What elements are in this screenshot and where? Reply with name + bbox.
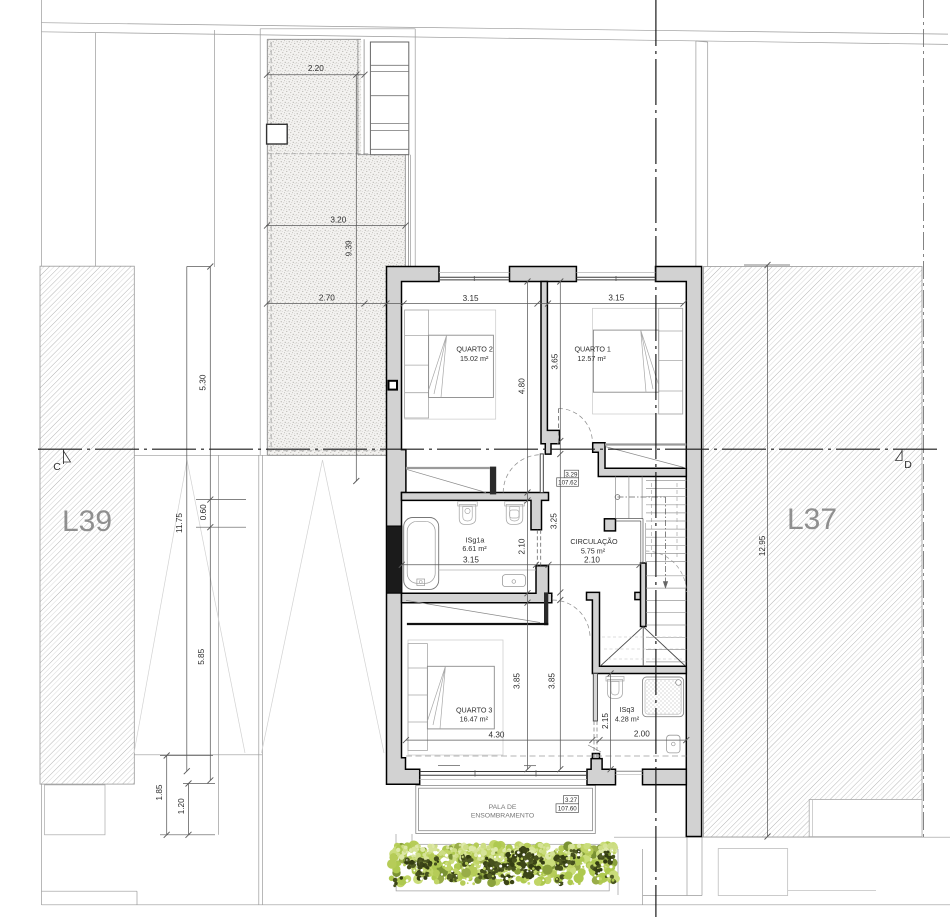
svg-text:6.61 m²: 6.61 m² — [462, 544, 487, 553]
svg-text:1.20: 1.20 — [177, 798, 186, 814]
svg-text:9.39: 9.39 — [344, 240, 353, 256]
svg-text:ISg1a: ISg1a — [466, 536, 485, 545]
svg-text:107.60: 107.60 — [558, 806, 577, 813]
svg-text:3.85: 3.85 — [548, 673, 557, 689]
svg-text:11.75: 11.75 — [175, 513, 184, 533]
svg-text:QUARTO 1: QUARTO 1 — [574, 344, 610, 353]
svg-text:4.28 m²: 4.28 m² — [615, 714, 640, 723]
svg-text:2.20: 2.20 — [308, 64, 324, 73]
svg-text:4.80: 4.80 — [517, 378, 526, 394]
svg-text:3.15: 3.15 — [463, 294, 479, 303]
svg-text:3.15: 3.15 — [463, 555, 479, 564]
svg-text:5.85: 5.85 — [197, 648, 206, 664]
svg-text:2.10: 2.10 — [518, 538, 527, 554]
svg-text:15.02 m²: 15.02 m² — [460, 354, 489, 363]
svg-text:3.25: 3.25 — [550, 513, 559, 529]
svg-text:QUARTO 2: QUARTO 2 — [456, 345, 492, 354]
svg-text:L37: L37 — [787, 503, 837, 536]
svg-text:PALA DE: PALA DE — [489, 804, 517, 811]
svg-text:1.85: 1.85 — [155, 784, 164, 800]
svg-text:L39: L39 — [62, 505, 112, 538]
svg-text:0.60: 0.60 — [199, 504, 208, 520]
svg-text:C: C — [53, 461, 61, 473]
svg-text:3.27: 3.27 — [565, 797, 578, 804]
svg-text:2.70: 2.70 — [319, 293, 335, 302]
svg-text:5.30: 5.30 — [199, 374, 208, 390]
svg-text:4.30: 4.30 — [489, 730, 505, 739]
svg-text:3.85: 3.85 — [513, 673, 522, 689]
svg-text:ISq3: ISq3 — [620, 705, 635, 714]
svg-text:16.47 m²: 16.47 m² — [460, 715, 489, 724]
svg-text:12.95: 12.95 — [758, 535, 767, 556]
svg-text:D: D — [904, 459, 912, 471]
svg-text:CIRCULAÇÃO: CIRCULAÇÃO — [570, 537, 618, 546]
svg-text:2.00: 2.00 — [634, 730, 650, 739]
svg-text:107.62: 107.62 — [558, 480, 577, 487]
svg-text:3.65: 3.65 — [551, 353, 560, 369]
svg-text:2.15: 2.15 — [601, 713, 610, 729]
svg-text:QUARTO 3: QUARTO 3 — [456, 705, 492, 714]
svg-text:12.57 m²: 12.57 m² — [577, 354, 606, 363]
svg-text:3.15: 3.15 — [608, 293, 624, 302]
svg-text:5.75 m²: 5.75 m² — [581, 546, 606, 555]
svg-text:3.20: 3.20 — [330, 215, 346, 224]
svg-text:3.29: 3.29 — [565, 471, 578, 478]
svg-text:ENSOMBRAMENTO: ENSOMBRAMENTO — [471, 812, 534, 819]
svg-text:2.10: 2.10 — [584, 555, 600, 564]
